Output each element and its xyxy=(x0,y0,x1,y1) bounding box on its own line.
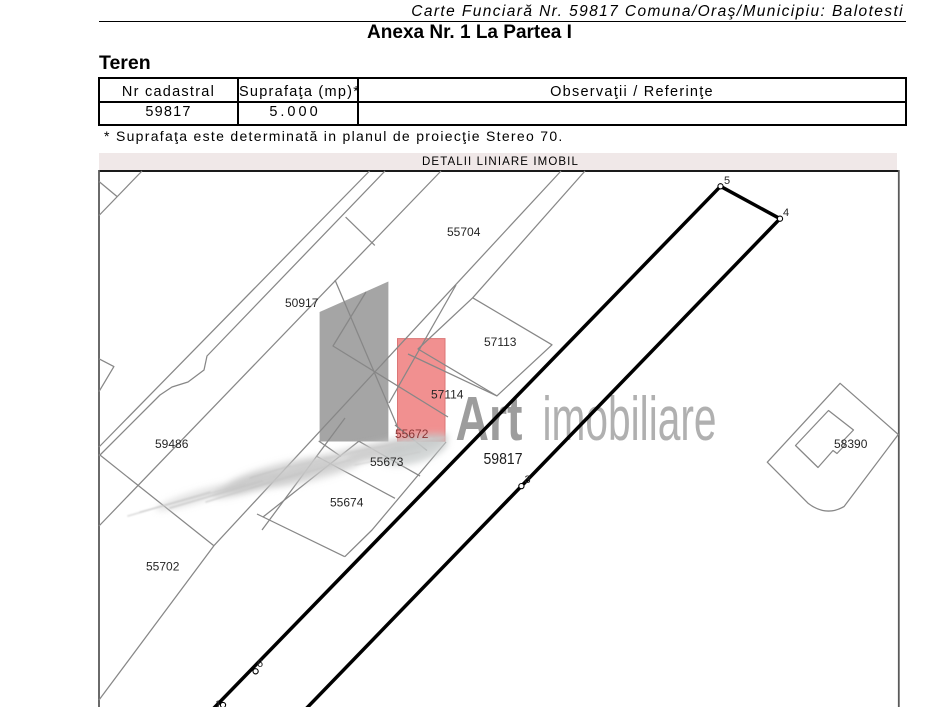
svg-text:3: 3 xyxy=(525,474,531,486)
svg-text:57114: 57114 xyxy=(431,388,464,402)
svg-text:4: 4 xyxy=(783,207,789,219)
svg-text:58390: 58390 xyxy=(834,437,868,451)
svg-text:57113: 57113 xyxy=(484,335,517,349)
svg-text:imobiliare: imobiliare xyxy=(543,385,717,454)
svg-text:6: 6 xyxy=(257,658,263,670)
svg-text:5: 5 xyxy=(724,175,730,187)
svg-text:55672: 55672 xyxy=(395,427,429,441)
svg-text:55674: 55674 xyxy=(330,496,364,510)
svg-text:59817: 59817 xyxy=(484,451,523,468)
svg-text:55702: 55702 xyxy=(146,560,180,574)
svg-text:1: 1 xyxy=(215,699,221,707)
svg-text:55673: 55673 xyxy=(370,455,404,469)
svg-text:55704: 55704 xyxy=(447,225,481,239)
svg-text:59486: 59486 xyxy=(155,437,189,451)
svg-text:Art: Art xyxy=(456,385,523,454)
svg-text:50917: 50917 xyxy=(285,296,319,310)
